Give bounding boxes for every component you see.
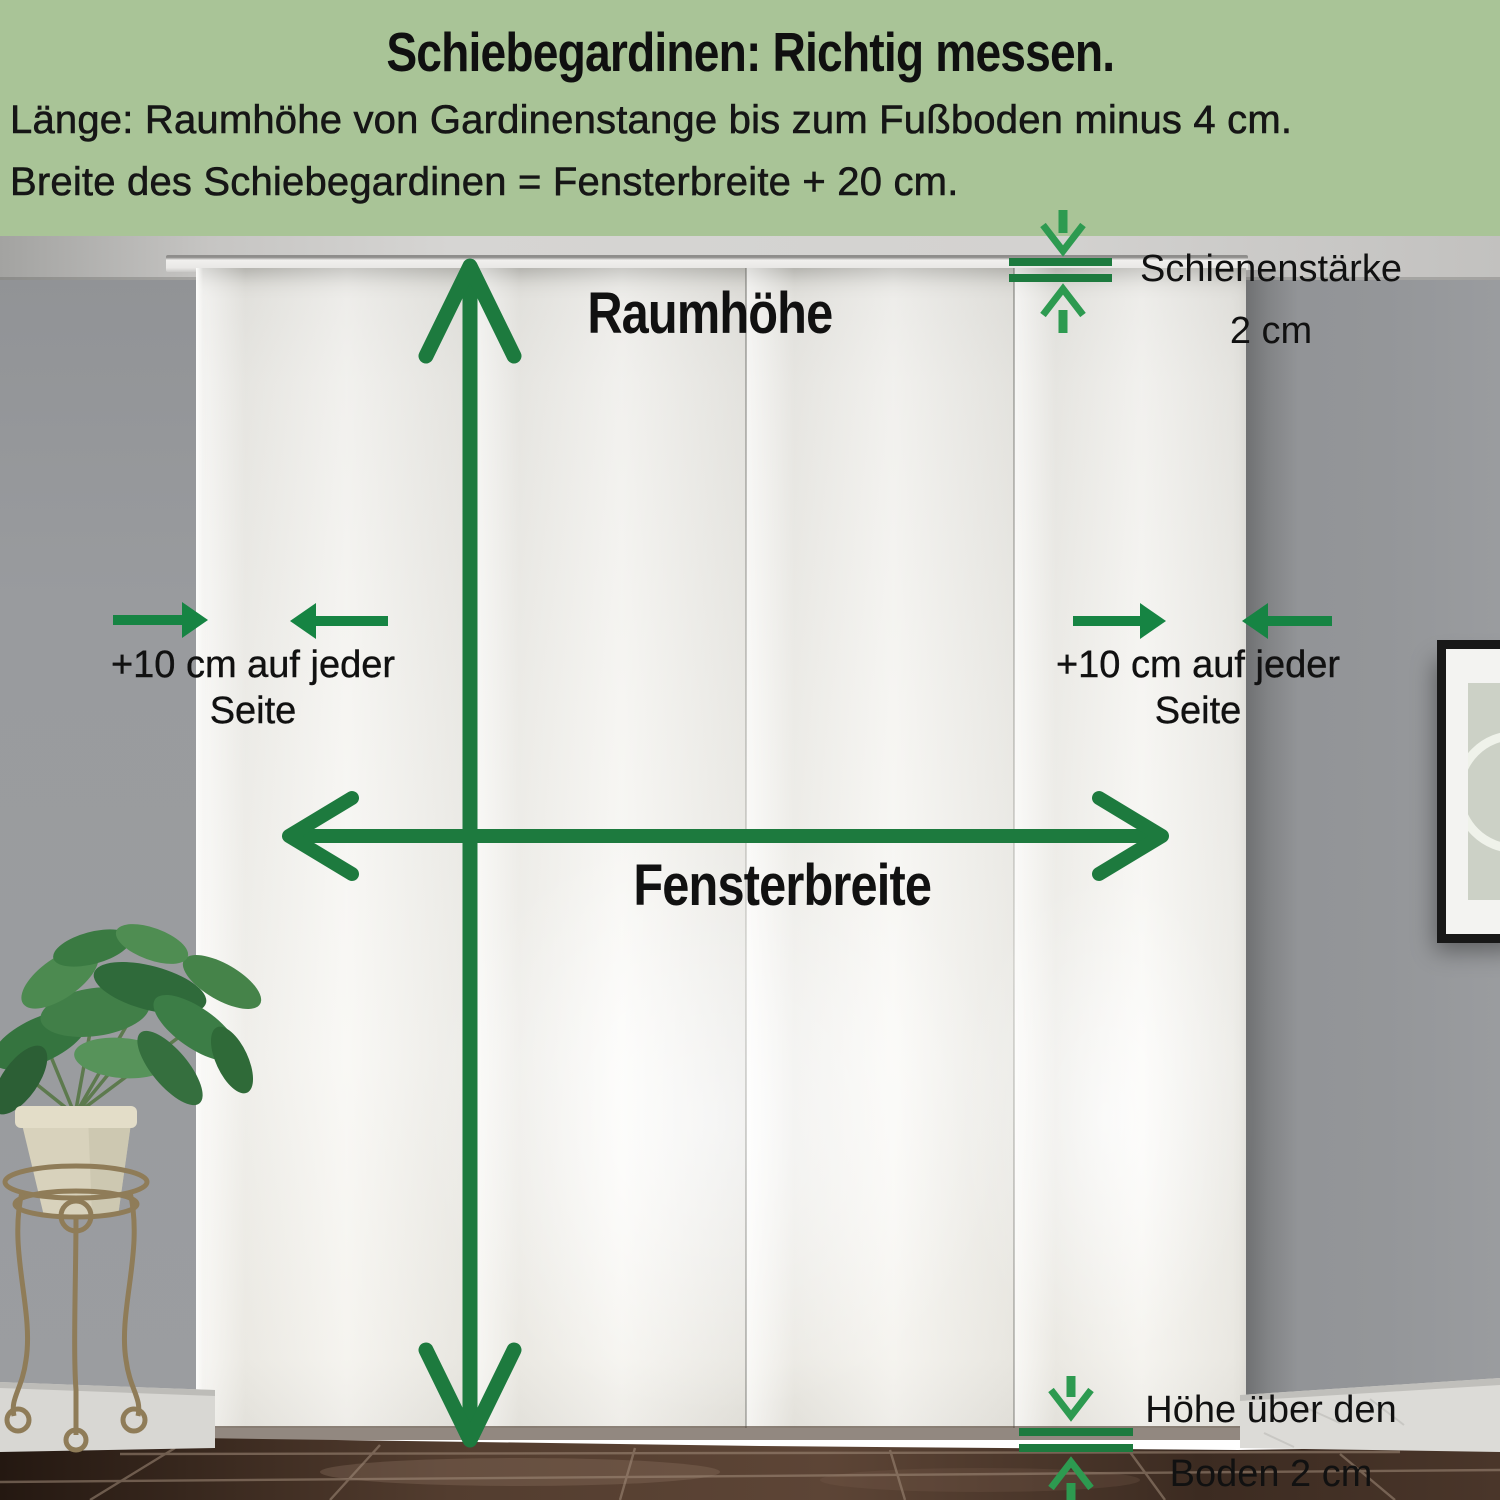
artwork-circle-motif	[1468, 731, 1500, 853]
right-margin-label: +10 cm auf jeder Seite	[1018, 642, 1378, 734]
left-wall	[0, 236, 200, 1452]
curtain-left-edge-highlight	[196, 268, 203, 1428]
curtain-panel-1	[196, 268, 470, 1428]
header-band: Schiebegardinen: Richtig messen. Länge: …	[0, 0, 1500, 236]
window-width-label: Fensterbreite	[580, 852, 985, 919]
left-margin-label: +10 cm auf jeder Seite	[73, 642, 433, 734]
wall-picture-frame	[1437, 640, 1500, 943]
page-title: Schiebegardinen: Richtig messen.	[386, 20, 1114, 84]
rail-thickness-value: 2 cm	[1115, 310, 1427, 352]
rail-thickness-label: Schienenstärke 2 cm	[1115, 248, 1427, 352]
curtain-panel-2	[470, 268, 746, 1428]
panel-separator	[469, 268, 471, 1428]
panel-separator	[745, 268, 747, 1428]
curtain-panel-3	[746, 268, 1014, 1428]
length-instruction: Länge: Raumhöhe von Gardinenstange bis z…	[10, 98, 1490, 143]
sliding-curtain-panels	[196, 268, 1246, 1428]
room-height-label: Raumhöhe	[545, 280, 875, 347]
framed-artwork	[1468, 683, 1500, 900]
curtain-panel-4	[1014, 268, 1246, 1428]
width-instruction: Breite des Schiebegardinen = Fensterbrei…	[10, 160, 1490, 205]
floor-gap-label: Höhe über den Boden 2 cm	[1110, 1390, 1432, 1494]
panel-separator	[1013, 268, 1015, 1428]
curtain-shadow-on-wall	[1246, 270, 1298, 1410]
infographic-canvas: Schiebegardinen: Richtig messen. Länge: …	[0, 0, 1500, 1500]
